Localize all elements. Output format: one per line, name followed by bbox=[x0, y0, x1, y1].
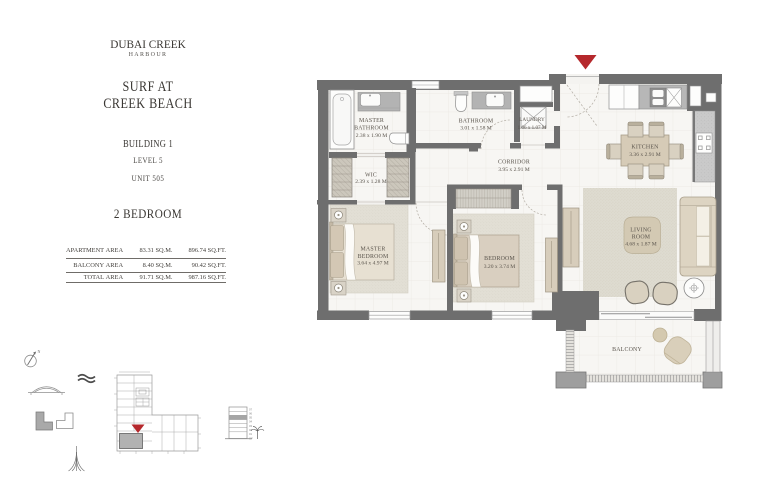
svg-text:ROOM: ROOM bbox=[632, 235, 651, 241]
svg-text:3.01 x 1.58 M: 3.01 x 1.58 M bbox=[460, 126, 492, 132]
svg-text:2.39 x 1.28 M: 2.39 x 1.28 M bbox=[355, 179, 387, 185]
svg-text:GF: GF bbox=[249, 437, 253, 441]
svg-text:BATHROOM: BATHROOM bbox=[354, 126, 389, 132]
svg-text:LAUNDRY: LAUNDRY bbox=[519, 117, 545, 123]
svg-text:LIVING: LIVING bbox=[630, 228, 652, 234]
svg-text:WIC: WIC bbox=[365, 173, 377, 179]
svg-text:N: N bbox=[38, 349, 41, 354]
svg-text:BATHROOM: BATHROOM bbox=[459, 119, 494, 125]
svg-text:BALCONY: BALCONY bbox=[612, 347, 642, 353]
svg-text:KITCHEN: KITCHEN bbox=[631, 144, 659, 150]
svg-text:2.38 x 1.90 M: 2.38 x 1.90 M bbox=[356, 133, 388, 139]
svg-text:MASTER: MASTER bbox=[359, 118, 384, 124]
svg-text:BEDROOM: BEDROOM bbox=[358, 254, 389, 260]
svg-text:MASTER: MASTER bbox=[360, 247, 385, 253]
svg-text:3.20 x 3.74 M: 3.20 x 3.74 M bbox=[484, 264, 516, 270]
svg-text:3.95 x 2.91 M: 3.95 x 2.91 M bbox=[498, 167, 530, 173]
svg-text:3.64 x 4.97 M: 3.64 x 4.97 M bbox=[357, 261, 389, 267]
svg-text:CORRIDOR: CORRIDOR bbox=[498, 160, 530, 166]
svg-text:3.36 x 2.91 M: 3.36 x 2.91 M bbox=[629, 152, 661, 158]
svg-text:BEDROOM: BEDROOM bbox=[484, 256, 515, 262]
svg-text:1.06 x 1.07 M: 1.06 x 1.07 M bbox=[518, 125, 547, 131]
svg-text:4.68 x 1.87 M: 4.68 x 1.87 M bbox=[625, 242, 657, 248]
svg-text:01: 01 bbox=[249, 432, 253, 436]
